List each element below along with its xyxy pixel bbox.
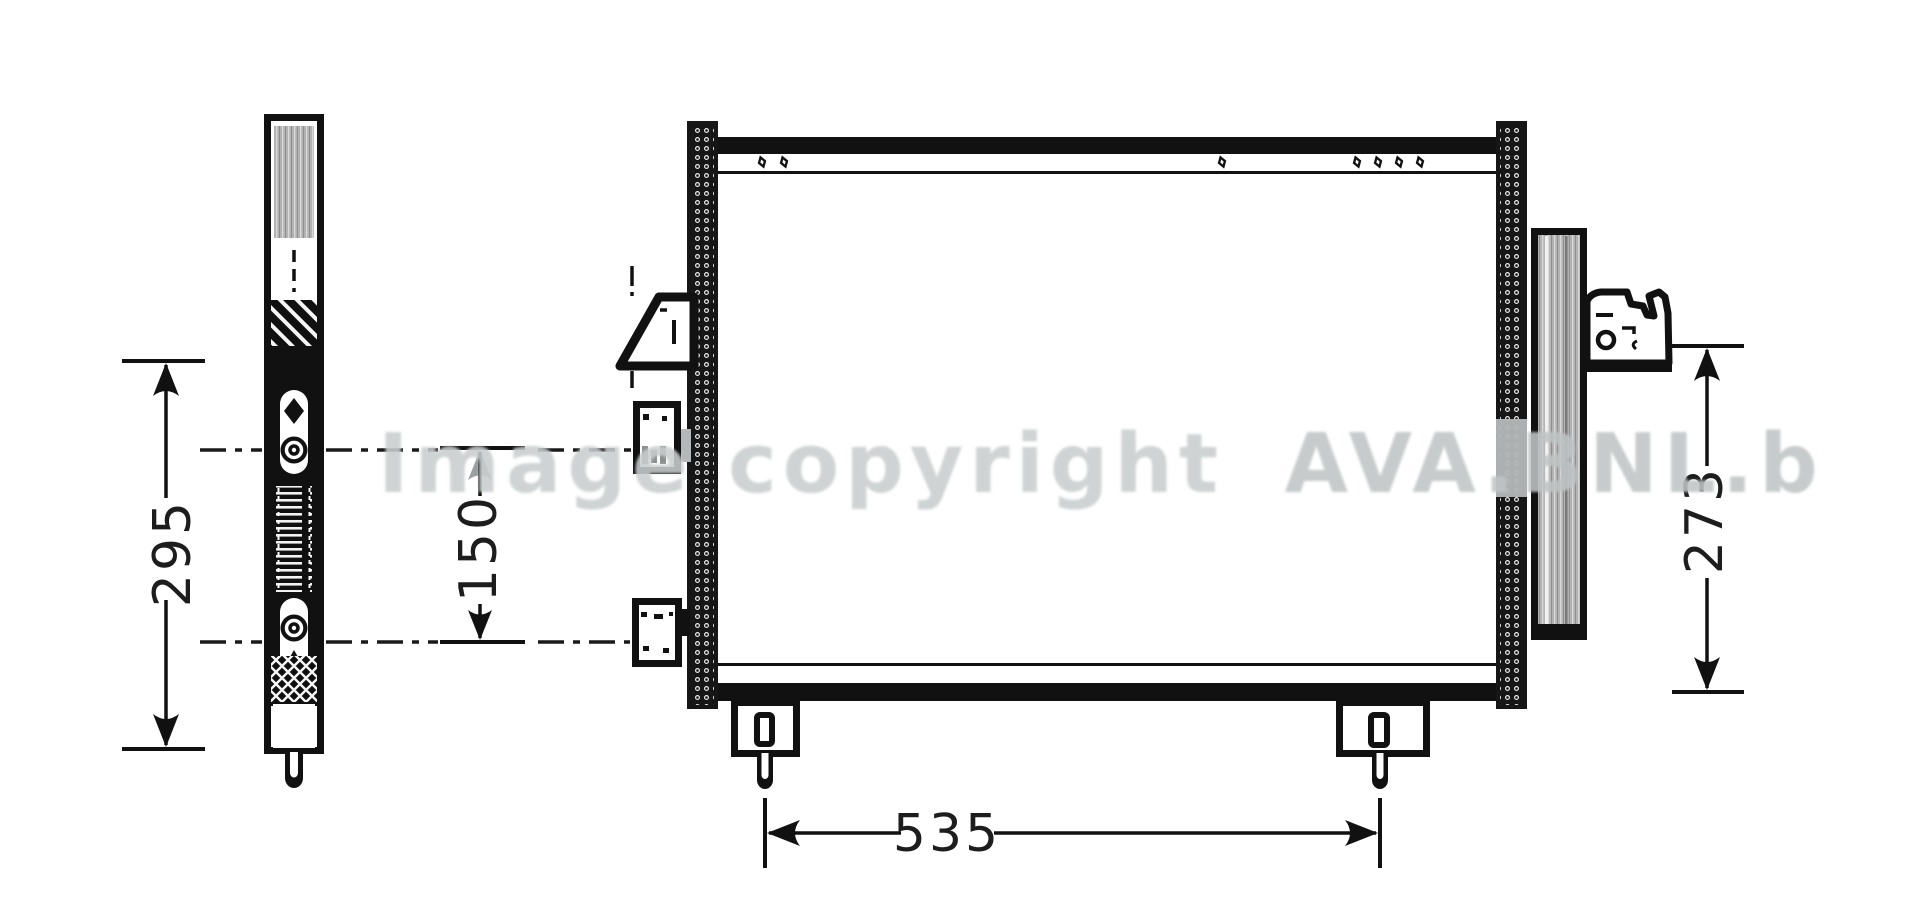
drier-fins bbox=[274, 126, 314, 238]
bottom-bracket-left bbox=[735, 703, 797, 790]
sparkle-icon bbox=[756, 154, 769, 170]
sparkle-icon bbox=[778, 154, 791, 170]
watermark-brand: AVA.BNL.b bbox=[1285, 417, 1824, 512]
lower-pipe-fitting bbox=[636, 602, 691, 664]
side-mounting-bracket bbox=[1583, 292, 1672, 372]
dimension-535-label: 535 bbox=[893, 804, 1001, 864]
condenser-assembly-diagram: 295 150 273 535 Image copyright AVA.BNL.… bbox=[0, 0, 1920, 921]
core-bottom-tank-bar bbox=[706, 683, 1506, 701]
crosshatch-band bbox=[271, 656, 317, 702]
dimension-295-label: 295 bbox=[143, 499, 203, 607]
watermark: Image copyright AVA.BNL.b bbox=[378, 417, 1824, 512]
dimension-295: 295 bbox=[122, 361, 205, 749]
core-top-inner-line bbox=[715, 171, 1499, 174]
top-mounting-bracket bbox=[620, 266, 694, 388]
right-header-tank bbox=[1496, 121, 1527, 709]
sparkle-icon bbox=[1393, 154, 1406, 170]
drier-upper-port bbox=[280, 390, 308, 474]
dimension-535: 535 bbox=[765, 798, 1380, 868]
hatch-band bbox=[271, 300, 317, 346]
left-header-tank bbox=[687, 121, 718, 709]
sparkle-icon bbox=[1216, 154, 1229, 170]
core-bottom-inner-line bbox=[715, 663, 1499, 666]
sparkle-icon bbox=[1351, 154, 1364, 170]
bottom-bracket-right bbox=[1340, 703, 1427, 790]
drier-coil bbox=[276, 486, 312, 592]
sparkle-icon bbox=[1372, 154, 1385, 170]
receiver-drier-side-view bbox=[268, 118, 321, 789]
watermark-prefix: Image copyright bbox=[378, 417, 1224, 512]
bracket-hole bbox=[1598, 332, 1614, 348]
core-top-tank-bar bbox=[706, 137, 1506, 154]
top-row-marks bbox=[756, 154, 1427, 170]
dimension-273: 273 bbox=[1672, 346, 1744, 692]
sparkle-icon bbox=[1414, 154, 1427, 170]
